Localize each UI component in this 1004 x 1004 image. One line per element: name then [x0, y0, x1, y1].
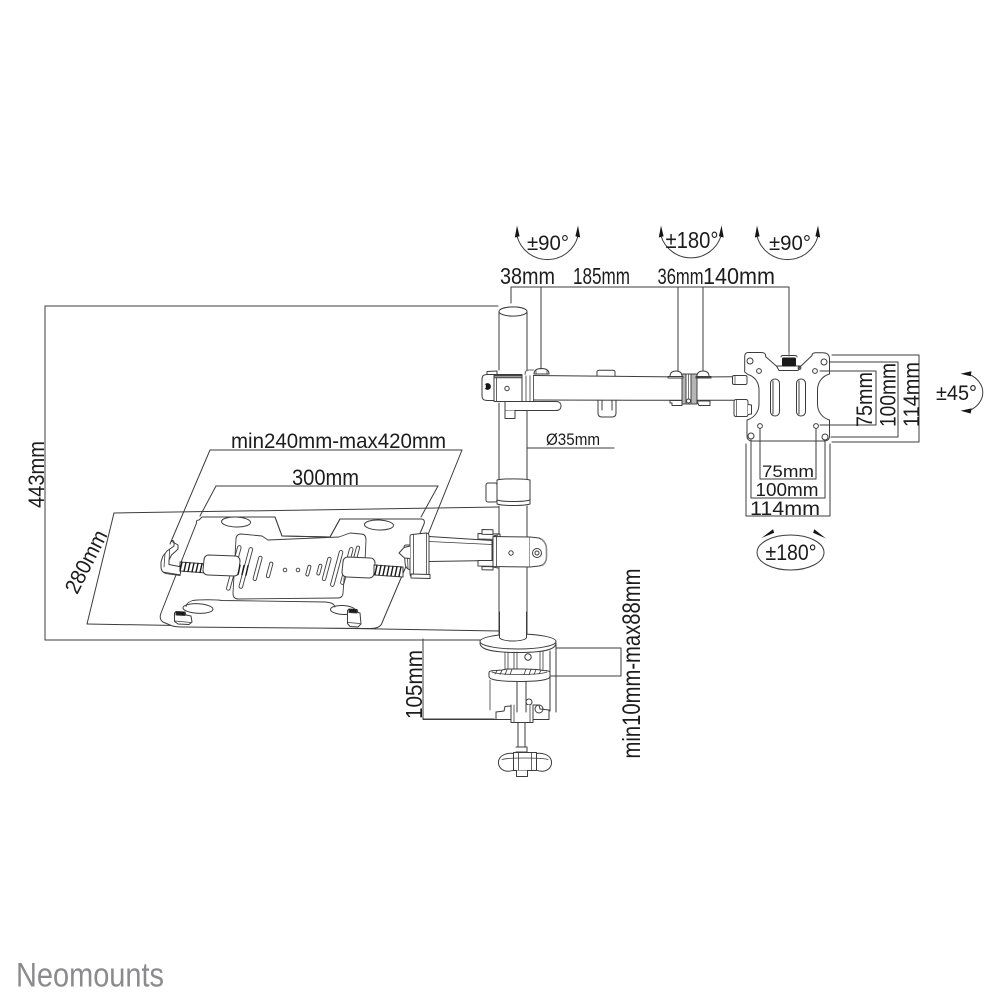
svg-text:100mm: 100mm [756, 480, 819, 500]
svg-text:±45°: ±45° [936, 381, 977, 405]
svg-text:114mm: 114mm [899, 362, 924, 427]
svg-text:75mm: 75mm [762, 462, 814, 481]
svg-text:±180°: ±180° [766, 540, 817, 565]
svg-text:280mm: 280mm [60, 526, 112, 597]
svg-text:185mm: 185mm [573, 263, 630, 289]
svg-text:105mm: 105mm [401, 650, 427, 719]
svg-text:114mm: 114mm [750, 499, 820, 520]
svg-text:300mm: 300mm [292, 465, 359, 490]
svg-text:±90°: ±90° [527, 231, 569, 255]
svg-text:±180°: ±180° [666, 227, 719, 253]
svg-text:38mm: 38mm [500, 263, 555, 289]
svg-text:±90°: ±90° [769, 231, 811, 255]
svg-text:100mm: 100mm [876, 363, 901, 427]
svg-text:443mm: 443mm [24, 441, 49, 508]
svg-text:75mm: 75mm [852, 372, 877, 427]
svg-text:140mm: 140mm [703, 263, 775, 289]
svg-text:36mm: 36mm [658, 264, 704, 289]
svg-text:Ø35mm: Ø35mm [546, 430, 600, 449]
svg-text:Neomounts: Neomounts [16, 957, 164, 995]
svg-text:min10mm-max88mm: min10mm-max88mm [618, 569, 646, 759]
svg-text:min240mm-max420mm: min240mm-max420mm [231, 429, 446, 453]
